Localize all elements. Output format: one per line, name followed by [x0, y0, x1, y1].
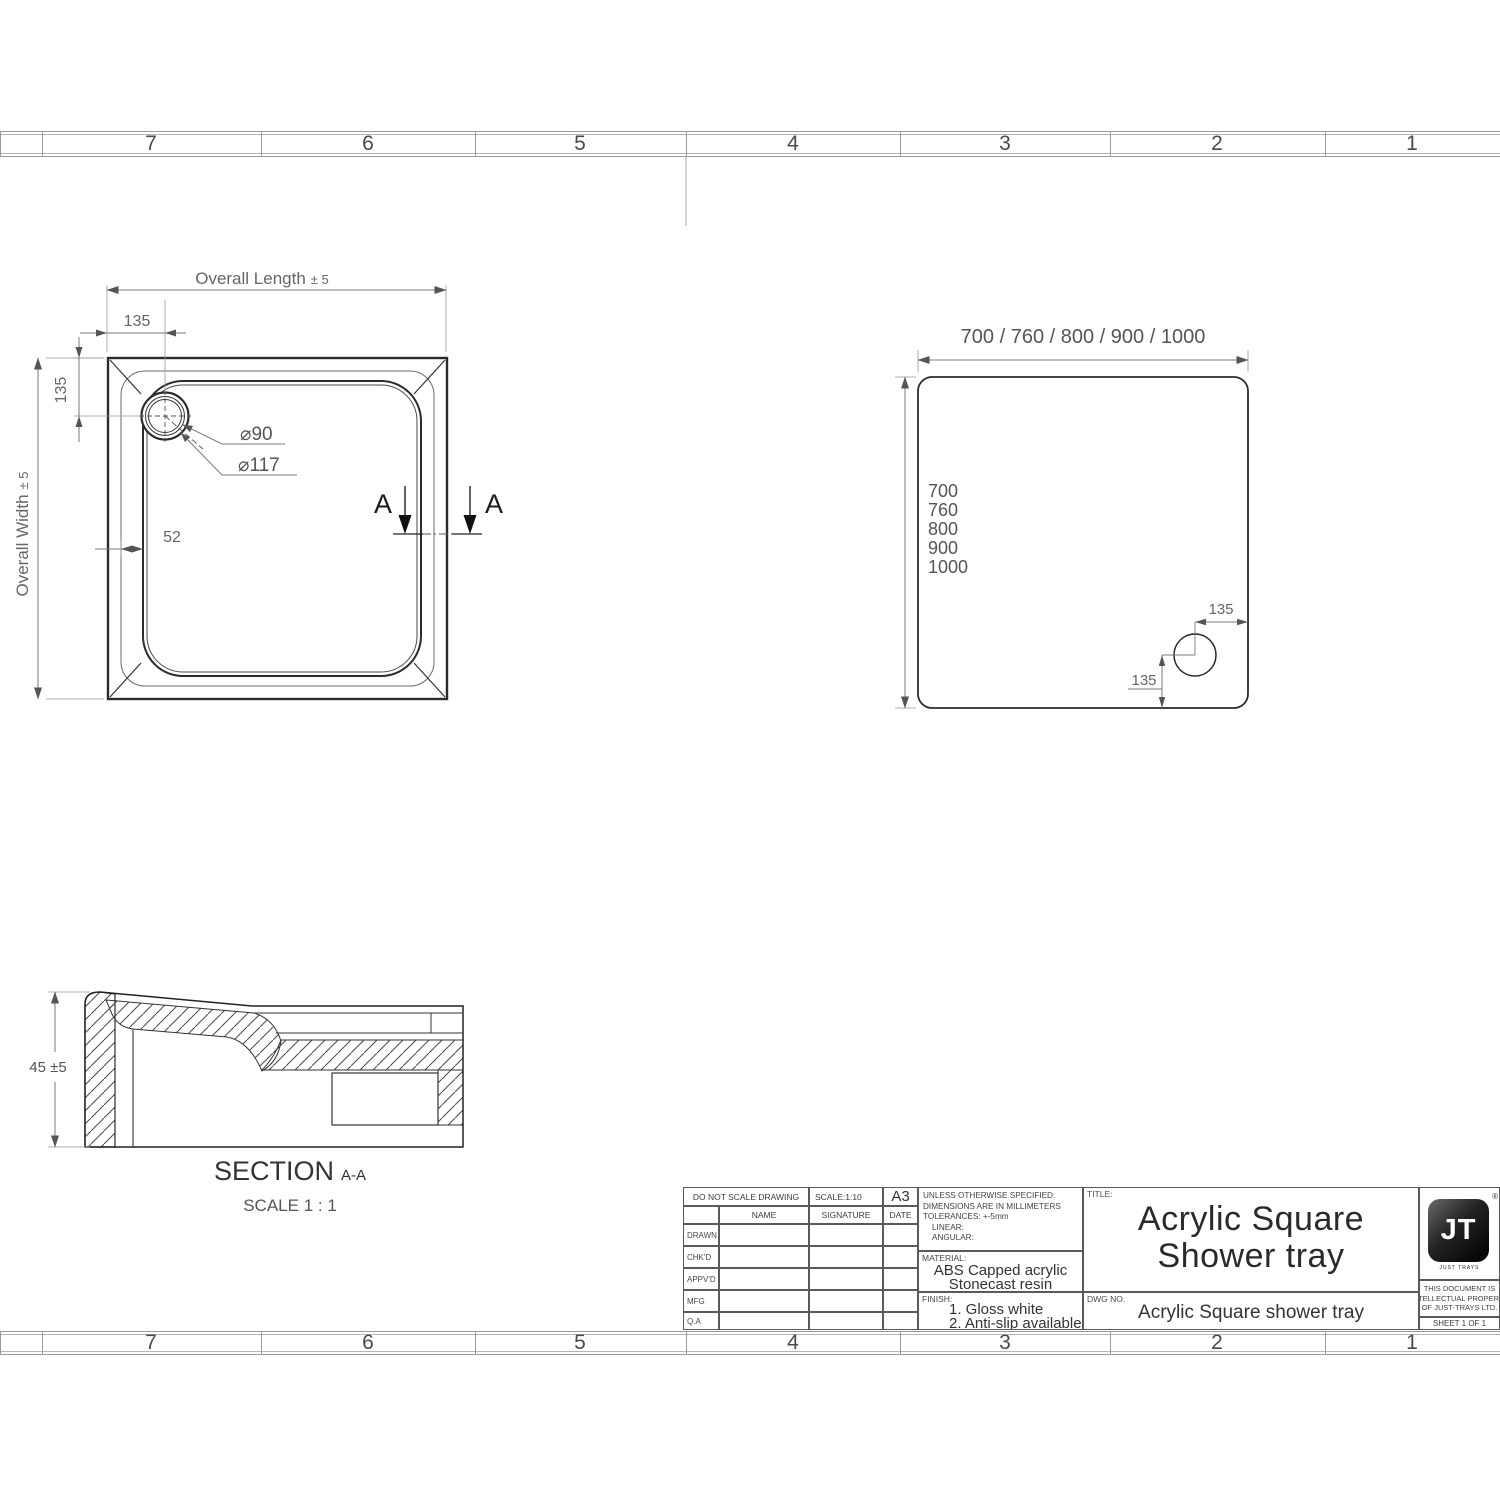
ruler-band: [0, 1334, 1500, 1352]
table-cell-empty: [719, 1268, 809, 1290]
dwg-label: DWG NO.: [1087, 1294, 1125, 1304]
ruler-band: [0, 134, 1500, 154]
table-cell-empty: [883, 1312, 918, 1330]
dim-52: 52: [163, 529, 181, 546]
property-note-line: OF JUST-TRAYS LTD.: [1422, 1303, 1498, 1313]
table-cell-empty: [719, 1224, 809, 1246]
ruler-zone: 2: [1197, 1332, 1237, 1354]
table-cell-empty: [719, 1246, 809, 1268]
ruler-tick: [261, 1332, 262, 1354]
width-options: 700 / 760 / 800 / 900 / 1000: [961, 326, 1206, 348]
ruler-bottom: 7 6 5 4 3 2 1: [0, 1331, 1500, 1355]
size-view: 700 / 760 / 800 / 900 / 1000 700 760 800…: [895, 326, 1248, 708]
col-name: NAME: [719, 1206, 809, 1224]
ruler-tick: [261, 132, 262, 156]
section-view: 45 ±5 SECTIONA-A SCALE 1 : 1: [29, 992, 463, 1215]
arrowhead: [96, 330, 107, 337]
length-option: 760: [928, 500, 958, 520]
do-not-scale-note: DO NOT SCALE DRAWING: [683, 1187, 809, 1206]
arrowhead: [76, 416, 83, 427]
plan-view: Overall Length± 5 Overall Width± 5 135 1…: [13, 269, 503, 699]
row-drawn: DRAWN: [683, 1224, 719, 1246]
table-cell-empty: [809, 1246, 883, 1268]
ruler-zone: 4: [773, 132, 813, 156]
table-cell-empty: [883, 1268, 918, 1290]
length-option: 800: [928, 519, 958, 539]
material-label: MATERIAL:: [922, 1253, 966, 1263]
dim-drain-from-side: 135: [1208, 601, 1233, 618]
ruler-tick: [686, 1332, 687, 1354]
ruler-zone: 4: [773, 1332, 813, 1354]
ruler-top: 7 6 5 4 3 2 1: [0, 131, 1500, 157]
ruler-zone: 3: [985, 132, 1025, 156]
ruler-tick: [900, 1332, 901, 1354]
title-label: TITLE:: [1087, 1189, 1113, 1199]
col-signature: SIGNATURE: [809, 1206, 883, 1224]
sheet-size: A3: [883, 1187, 918, 1206]
property-note-line: INTELLECTUAL PROPERTY: [1419, 1294, 1500, 1304]
drawing-title-line1: Acrylic Square: [1084, 1201, 1418, 1238]
table-cell-empty: [809, 1312, 883, 1330]
table-cell-empty: [809, 1268, 883, 1290]
section-left-wall: [85, 992, 115, 1147]
row-mfg: MFG: [683, 1290, 719, 1312]
ruler-zone: 3: [985, 1332, 1025, 1354]
ruler-zone: 2: [1197, 132, 1237, 156]
drawing-title-line2: Shower tray: [1084, 1238, 1418, 1275]
ruler-tick: [475, 1332, 476, 1354]
dim-135-x: 135: [124, 313, 151, 330]
tolerance-line: UNLESS OTHERWISE SPECIFIED:: [923, 1191, 1078, 1202]
overall-length-dim: Overall Length± 5: [195, 269, 329, 288]
ruler-tick: [900, 132, 901, 156]
table-cell-empty: [809, 1224, 883, 1246]
tolerance-line: LINEAR:: [923, 1223, 1078, 1234]
section-rim-wedge: [106, 1000, 281, 1071]
ruler-zone: 7: [131, 1332, 171, 1354]
property-note: THIS DOCUMENT IS INTELLECTUAL PROPERTY O…: [1419, 1280, 1500, 1317]
section-arrowhead: [464, 515, 477, 534]
jt-logo: JT: [1428, 1199, 1489, 1262]
section-caption: SECTIONA-A: [214, 1156, 366, 1186]
ruler-zone: 6: [348, 1332, 388, 1354]
table-cell-empty: [683, 1206, 719, 1224]
ruler-zone: 6: [348, 132, 388, 156]
table-cell-empty: [809, 1290, 883, 1312]
section-floor-slab: [262, 1040, 463, 1070]
section-scale-note: SCALE 1 : 1: [243, 1196, 337, 1215]
length-option: 700: [928, 481, 958, 501]
tolerance-line: TOLERANCES: +-5mm: [923, 1212, 1078, 1223]
arrowhead: [165, 330, 176, 337]
ruler-tick: [686, 132, 687, 156]
ruler-tick: [1110, 132, 1111, 156]
jt-logo-text: JT: [1441, 1214, 1477, 1247]
logo-cell: JT ® JUST TRAYS: [1419, 1187, 1500, 1280]
ruler-tick: [475, 132, 476, 156]
row-appvd: APPV'D: [683, 1268, 719, 1290]
table-cell-empty: [883, 1246, 918, 1268]
tolerance-line: ANGULAR:: [923, 1233, 1078, 1244]
ruler-tick: [0, 132, 1, 156]
ruler-tick: [42, 132, 43, 156]
drawing-sheet: Overall Length± 5 Overall Width± 5 135 1…: [0, 0, 1500, 1500]
table-cell-empty: [719, 1312, 809, 1330]
section-letter-right: A: [485, 489, 503, 519]
ruler-zone: 7: [131, 132, 171, 156]
ruler-tick: [1110, 1332, 1111, 1354]
length-option: 900: [928, 538, 958, 558]
dim-height: 45 ±5: [29, 1059, 66, 1076]
registered-mark-icon: ®: [1492, 1192, 1498, 1201]
property-note-line: THIS DOCUMENT IS: [1424, 1284, 1496, 1294]
section-letter-left: A: [374, 489, 392, 519]
table-cell-empty: [719, 1290, 809, 1312]
dwg-number: Acrylic Square shower tray: [1084, 1302, 1418, 1324]
material-block: MATERIAL: ABS Capped acrylic Stonecast r…: [918, 1251, 1083, 1292]
tolerance-block: UNLESS OTHERWISE SPECIFIED: DIMENSIONS A…: [918, 1187, 1083, 1251]
ruler-tick: [1325, 1332, 1326, 1354]
section-right-wall: [438, 1070, 463, 1125]
table-cell-empty: [883, 1224, 918, 1246]
section-drain-recess: [332, 1073, 438, 1125]
ruler-zone: 5: [560, 1332, 600, 1354]
row-qa: Q.A: [683, 1312, 719, 1330]
drain-diameter-90: ⌀90: [240, 424, 273, 445]
finish-line2: 2. Anti-slip available: [949, 1317, 1082, 1330]
drain-diameter-117: ⌀117: [238, 455, 280, 476]
overall-width-dim: Overall Width± 5: [13, 471, 32, 596]
ruler-tick: [1325, 132, 1326, 156]
finish-label: FINISH:: [922, 1294, 952, 1304]
scale-note: SCALE:1:10: [809, 1187, 883, 1206]
logo-tagline: JUST TRAYS: [1420, 1265, 1499, 1271]
arrowhead: [76, 347, 83, 358]
ruler-zone: 1: [1392, 132, 1432, 156]
sheet-note: SHEET 1 OF 1: [1419, 1317, 1500, 1330]
ruler-tick: [42, 1332, 43, 1354]
tolerance-line: DIMENSIONS ARE IN MILLIMETERS: [923, 1202, 1078, 1213]
title-cell: TITLE: Acrylic Square Shower tray: [1083, 1187, 1419, 1292]
table-cell-empty: [883, 1290, 918, 1312]
length-option: 1000: [928, 557, 968, 577]
ruler-zone: 5: [560, 132, 600, 156]
col-date: DATE: [883, 1206, 918, 1224]
ruler-zone: 1: [1392, 1332, 1432, 1354]
dwg-cell: DWG NO. Acrylic Square shower tray: [1083, 1292, 1419, 1330]
material-line2: Stonecast resin: [919, 1278, 1082, 1292]
dim-drain-from-bottom: 135: [1131, 672, 1156, 689]
dim-135-y: 135: [53, 377, 70, 404]
row-chkd: CHK'D: [683, 1246, 719, 1268]
finish-block: FINISH: 1. Gloss white 2. Anti-slip avai…: [918, 1292, 1083, 1330]
ruler-tick: [0, 1332, 1, 1354]
